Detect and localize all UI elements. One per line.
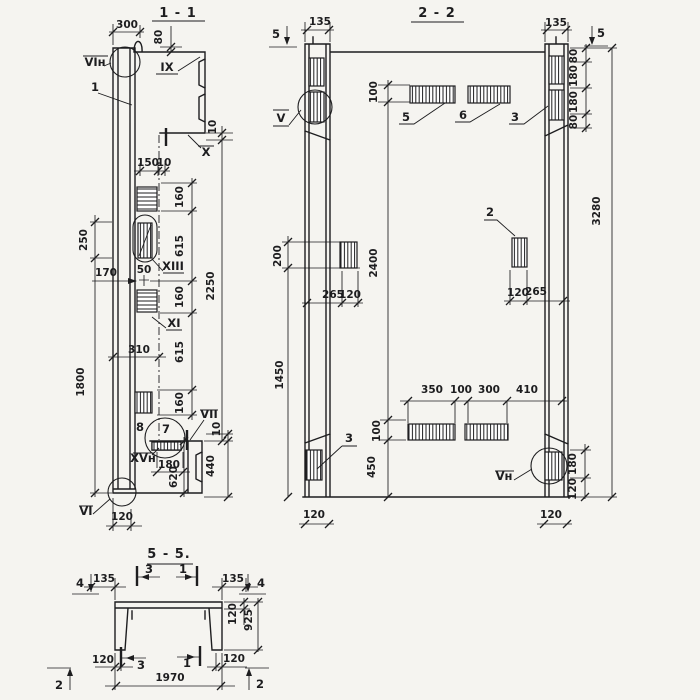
dim-180: 180 xyxy=(568,65,580,87)
dim-120: 120 xyxy=(303,509,325,521)
embed-plate xyxy=(137,290,157,312)
dim-135: 135 xyxy=(309,16,331,28)
dim-135: 135 xyxy=(545,17,567,29)
dim-3280: 3280 xyxy=(591,196,603,225)
dim-615: 615 xyxy=(174,341,186,363)
dim-150: 150 xyxy=(137,157,159,169)
s11-dimension-texts: 30080VIн1IX10X15010160615160615160225025… xyxy=(75,19,223,523)
dim-440: 440 xyxy=(205,455,217,477)
dim-120: 120 xyxy=(540,509,562,521)
dim-180: 180 xyxy=(567,453,579,475)
label-5: 5 xyxy=(272,27,280,41)
label-VII: VII xyxy=(200,407,217,421)
label-7: 7 xyxy=(162,422,170,436)
section-2-2: 2 - 2 13513555100563V8018018080328020024… xyxy=(269,6,617,528)
dim-50: 50 xyxy=(137,264,152,276)
dim-620: 620 xyxy=(168,466,180,488)
dim-10: 10 xyxy=(207,120,219,135)
label-5: 5 xyxy=(402,110,410,124)
embed-plate xyxy=(512,238,527,267)
embed-plate xyxy=(410,86,455,103)
label-X: X xyxy=(202,145,211,159)
embed-plate xyxy=(340,242,357,268)
label-3: 3 xyxy=(511,110,519,124)
dim-300: 300 xyxy=(116,19,138,31)
embed-plate xyxy=(408,424,455,440)
label-3: 3 xyxy=(345,431,353,445)
dim-1970: 1970 xyxy=(155,672,184,684)
label-4: 4 xyxy=(257,576,265,590)
dim-2250: 2250 xyxy=(205,271,217,300)
section-1-1: 1 - 1 30080VIн1IX10X15010160615160615160… xyxy=(75,6,233,531)
dim-80: 80 xyxy=(568,49,580,64)
label-Vн: Vн xyxy=(496,469,513,483)
drawing-canvas: 1 - 1 30080VIн1IX10X15010160615160615160… xyxy=(0,0,700,700)
label-5: 5 xyxy=(597,26,605,40)
label-XIII: XIII xyxy=(162,259,184,273)
dim-10: 10 xyxy=(157,157,172,169)
dim-925: 925 xyxy=(243,609,255,631)
dim-160: 160 xyxy=(174,392,186,414)
dim-120: 120 xyxy=(227,603,239,625)
label-2: 2 xyxy=(486,205,494,219)
dim-410: 410 xyxy=(516,384,538,396)
dim-120: 120 xyxy=(339,289,361,301)
label-VI: VI xyxy=(79,504,92,518)
embed-plate xyxy=(549,56,564,84)
section-5-5-title: 5 - 5. xyxy=(147,547,190,562)
label-3: 3 xyxy=(145,562,153,576)
embed-plate xyxy=(137,187,157,211)
dim-160: 160 xyxy=(174,286,186,308)
dim-80: 80 xyxy=(153,30,165,45)
label-2: 2 xyxy=(55,678,63,692)
dim-250: 250 xyxy=(78,229,90,251)
label-IX: IX xyxy=(160,60,173,74)
dim-1450: 1450 xyxy=(274,360,286,389)
embed-plate xyxy=(306,450,322,480)
dim-265: 265 xyxy=(525,286,547,298)
dim-120: 120 xyxy=(567,478,579,500)
embed-plate xyxy=(135,392,152,413)
embed-plate xyxy=(309,58,324,86)
dim-200: 200 xyxy=(272,245,284,267)
section-5-5: 5 - 5. 413531135412092512031120197022 xyxy=(47,547,269,692)
label-6: 6 xyxy=(459,108,467,122)
dim-100: 100 xyxy=(371,420,383,442)
detail-circle-vi-bottom xyxy=(108,478,136,506)
dim-120: 120 xyxy=(92,654,114,666)
s55-outline xyxy=(115,602,222,650)
dim-170: 170 xyxy=(95,267,117,279)
label-XVн: XVн xyxy=(130,451,156,465)
dim-135: 135 xyxy=(93,573,115,585)
section-2-2-title: 2 - 2 xyxy=(418,6,456,21)
label-1: 1 xyxy=(183,656,191,670)
dim-615: 615 xyxy=(174,235,186,257)
blueprint-page: { "meta": { "ink": "#1d1d1f", "paper": "… xyxy=(0,0,700,700)
embed-plate xyxy=(465,424,508,440)
label-8: 8 xyxy=(136,420,144,434)
embed-plate xyxy=(549,90,564,120)
embed-plate xyxy=(545,452,562,480)
embed-plate xyxy=(152,442,181,450)
label-1: 1 xyxy=(179,562,187,576)
embed-plate xyxy=(468,86,510,103)
label-XI: XI xyxy=(167,316,180,330)
s55-section-bars xyxy=(121,566,200,667)
dim-1800: 1800 xyxy=(75,367,87,396)
dim-100: 100 xyxy=(368,81,380,103)
dim-160: 160 xyxy=(174,186,186,208)
s55-dimension-texts: 413531135412092512031120197022 xyxy=(55,562,265,692)
dim-135: 135 xyxy=(222,573,244,585)
dim-2400: 2400 xyxy=(368,248,380,277)
dim-310: 310 xyxy=(128,344,150,356)
label-2: 2 xyxy=(256,677,264,691)
dim-100: 100 xyxy=(450,384,472,396)
dim-300: 300 xyxy=(478,384,500,396)
dim-450: 450 xyxy=(366,456,378,478)
dim-180: 180 xyxy=(568,91,580,113)
dim-120: 120 xyxy=(111,511,133,523)
dim-350: 350 xyxy=(421,384,443,396)
label-4: 4 xyxy=(76,576,84,590)
section-1-1-title: 1 - 1 xyxy=(159,6,197,21)
label-V: V xyxy=(277,111,286,125)
dim-10: 10 xyxy=(211,422,223,437)
label-3: 3 xyxy=(137,658,145,672)
label-1: 1 xyxy=(91,80,99,94)
dim-80: 80 xyxy=(568,115,580,130)
embed-plate xyxy=(309,92,324,122)
label-VIн: VIн xyxy=(84,55,105,69)
dim-120: 120 xyxy=(223,653,245,665)
